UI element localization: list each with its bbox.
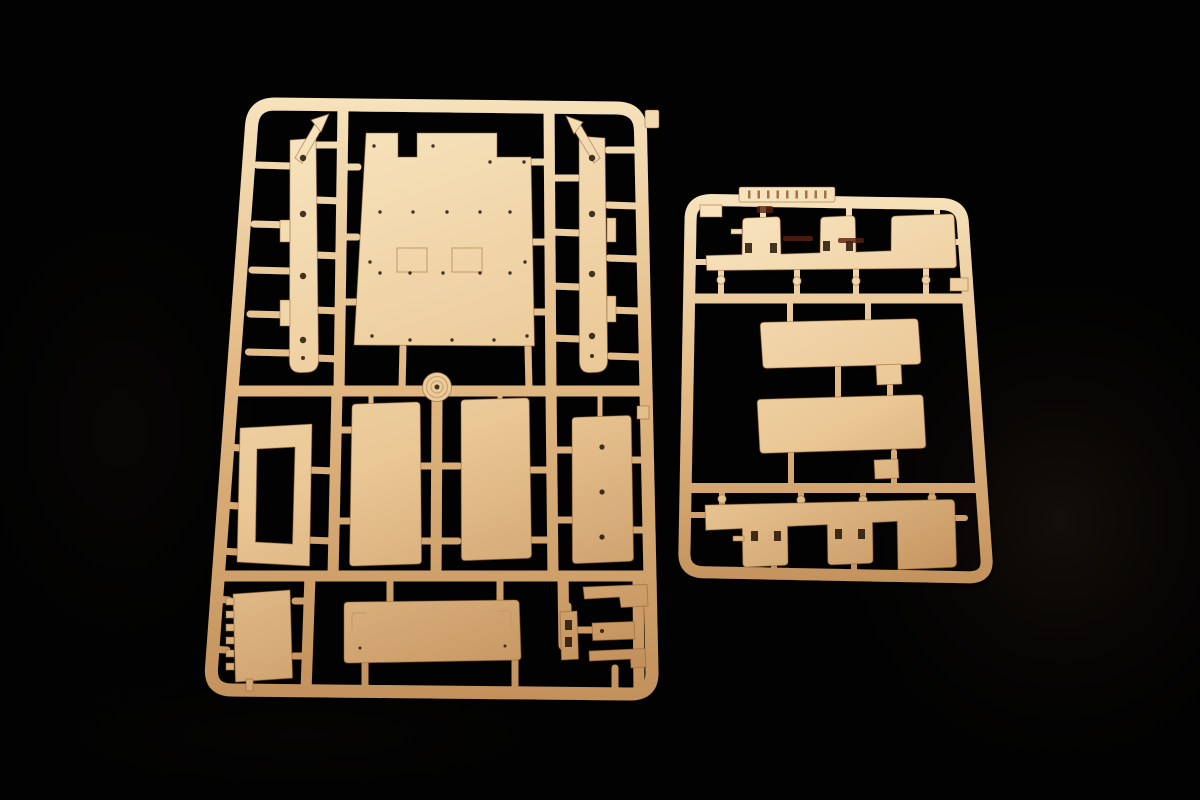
frame-tab-small	[637, 406, 649, 419]
ribbed-plate	[226, 590, 293, 691]
side-panel-b	[461, 398, 532, 561]
long-lower-panel	[344, 600, 521, 663]
photo-stage	[0, 0, 1200, 800]
id-tab-emboss	[748, 191, 827, 199]
frame-tab-small	[950, 278, 968, 291]
side-panel-drilled	[572, 415, 634, 563]
seat-strip-lower	[705, 499, 957, 569]
sprue-photo	[0, 0, 1200, 800]
frame-tab	[645, 110, 659, 128]
step-piece-lower	[874, 459, 899, 479]
floor-plate	[354, 133, 535, 346]
seat-strip-upper	[706, 214, 957, 271]
long-panel-upper	[760, 319, 921, 369]
long-panel-lower	[757, 395, 926, 454]
frame-tab	[700, 205, 722, 217]
side-panel-a	[350, 402, 422, 566]
step-piece-upper	[876, 364, 902, 385]
